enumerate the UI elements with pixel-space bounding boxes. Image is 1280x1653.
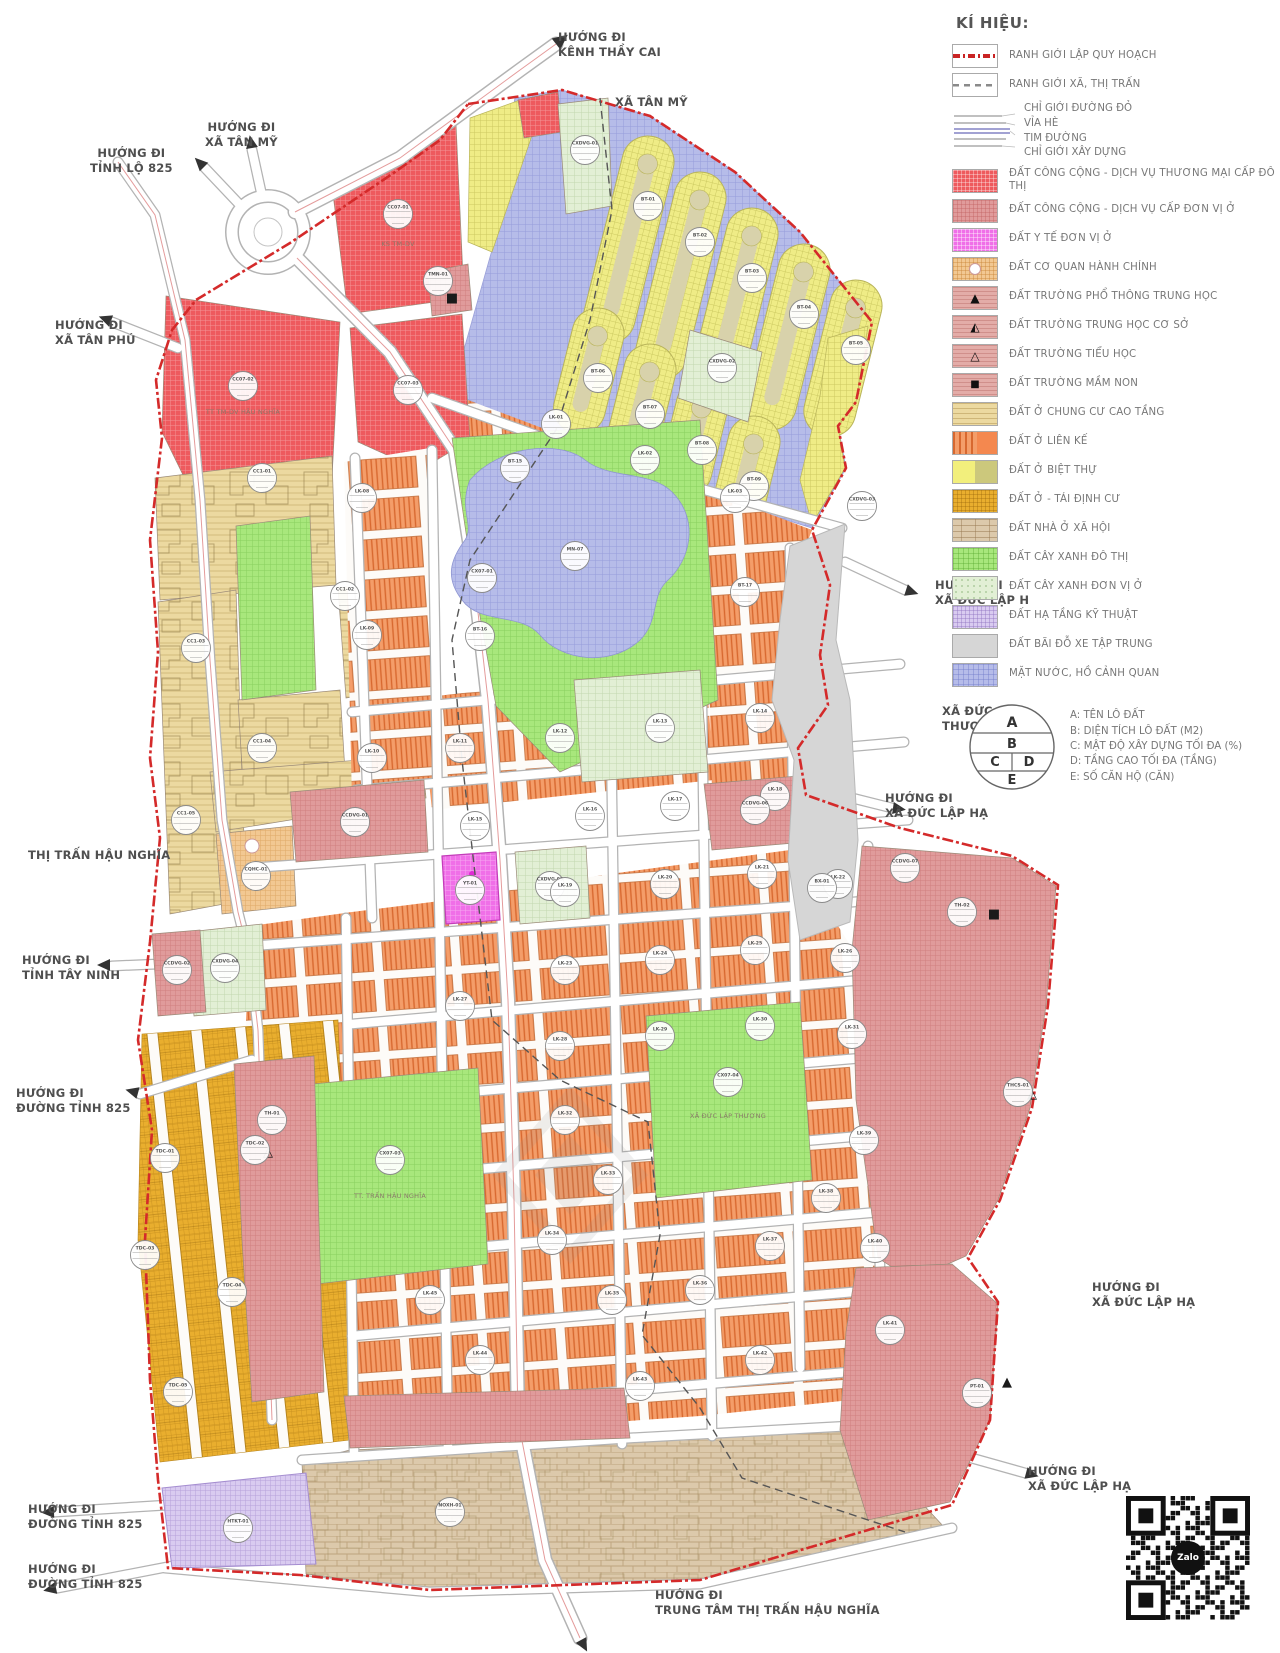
road-section-label: VỈA HÈ: [1024, 117, 1132, 132]
plot-marker: LK-37: [756, 1232, 785, 1261]
plot-marker: CXDVG-02: [708, 354, 737, 383]
label-kenh-thay-cai: HƯỚNG ĐI KÊNH THẦY CAI: [558, 30, 661, 60]
svg-text:LK-31: LK-31: [845, 1025, 859, 1031]
plot-marker: LK-25: [741, 936, 770, 965]
plot-marker: TH-01: [258, 1106, 287, 1135]
plot-marker: CC07-03: [394, 376, 423, 405]
plot-marker: CC1-03: [182, 634, 211, 663]
svg-text:NOXH-01: NOXH-01: [438, 1503, 461, 1509]
legend-item: ĐẤT CƠ QUAN HÀNH CHÍNH: [952, 257, 1278, 281]
plot-marker: CXDVG-01: [571, 136, 600, 165]
label-xa-tan-phu: HƯỚNG ĐI XÃ TÂN PHÚ: [55, 318, 136, 348]
plot-marker: MN-07: [561, 542, 590, 571]
svg-text:CC1-04: CC1-04: [253, 739, 271, 745]
plot-marker: BT-15: [501, 454, 530, 483]
svg-text:CC1-05: CC1-05: [177, 811, 195, 817]
label-di-xa-tan-my: HƯỚNG ĐI XÃ TÂN MỸ: [205, 120, 278, 150]
plot-marker: LK-43: [626, 1372, 655, 1401]
svg-text:TDC-01: TDC-01: [156, 1149, 175, 1155]
svg-text:CX07-04: CX07-04: [717, 1073, 739, 1079]
plot-marker: LK-11: [446, 734, 475, 763]
svg-text:CC07-03: CC07-03: [397, 381, 418, 387]
svg-text:LK-29: LK-29: [653, 1027, 667, 1033]
svg-text:LK-40: LK-40: [868, 1239, 882, 1245]
plot-marker: BT-02: [686, 228, 715, 257]
svg-text:LK-36: LK-36: [693, 1281, 707, 1287]
plot-marker: LK-10: [358, 744, 387, 773]
plot-marker: LK-26: [831, 944, 860, 973]
plot-marker: TDC-05: [164, 1378, 193, 1407]
plot-marker: CC1-05: [172, 806, 201, 835]
svg-text:CXDVG-03: CXDVG-03: [849, 497, 875, 503]
plot-marker: LK-32: [551, 1106, 580, 1135]
zalo-qr-code: Zalo: [1126, 1496, 1250, 1620]
svg-text:CCDVG-02: CCDVG-02: [164, 961, 190, 967]
plot-marker: LK-33: [594, 1166, 623, 1195]
swatch-biet-thu: [952, 460, 998, 484]
legend-item: ĐẤT CÂY XANH ĐÔ THỊ: [952, 547, 1278, 571]
svg-text:BT-17: BT-17: [738, 583, 752, 589]
svg-text:LK-26: LK-26: [838, 949, 852, 955]
label-xa-tan-my: XÃ TÂN MỸ: [615, 95, 688, 110]
school-glyph: ■: [988, 907, 1000, 922]
svg-text:TH-02: TH-02: [954, 903, 969, 909]
svg-text:CX07-03: CX07-03: [379, 1151, 401, 1157]
legend-item: ĐẤT Y TẾ ĐƠN VỊ Ở: [952, 228, 1278, 252]
plot-marker: LK-21: [748, 860, 777, 889]
swatch-chung-cu: [952, 402, 998, 426]
plot-marker: LK-44: [466, 1346, 495, 1375]
plot-marker: LK-40: [861, 1234, 890, 1263]
svg-text:LK-37: LK-37: [763, 1237, 777, 1243]
plot-marker: BX-01: [808, 874, 837, 903]
svg-text:LK-19: LK-19: [558, 883, 572, 889]
svg-text:D: D: [1024, 755, 1035, 770]
svg-text:LK-24: LK-24: [653, 951, 667, 957]
svg-text:B: B: [1007, 737, 1017, 752]
plot-marker: LK-01: [542, 410, 571, 439]
svg-text:LK-02: LK-02: [638, 451, 652, 457]
plot-marker: CX07-01: [468, 564, 497, 593]
plot-marker: BT-05: [842, 336, 871, 365]
svg-text:BT-05: BT-05: [849, 341, 863, 347]
plot-key-circle: A B C D E: [966, 701, 1058, 793]
legend-item: ĐẤT HẠ TẦNG KỸ THUẬT: [952, 605, 1278, 629]
swatch-tai-dinh-cu: [952, 489, 998, 513]
swatch-bai-do-xe: [952, 634, 998, 658]
sublabel-xa-duc-lap-thuong: XÃ ĐỨC LẬP THƯỢNG: [690, 1112, 766, 1120]
legend-item: ĐẤT Ở CHUNG CƯ CAO TẦNG: [952, 402, 1278, 426]
plot-marker: LK-28: [546, 1032, 575, 1061]
commune-boundary-swatch: [952, 73, 998, 97]
swatch-cay-xanh-don-vi-o: [952, 576, 998, 600]
label-xdlh-4: HƯỚNG ĐI XÃ ĐỨC LẬP HẠ: [1028, 1464, 1131, 1494]
plot-marker: LK-31: [838, 1020, 867, 1049]
plot-marker: BT-17: [731, 578, 760, 607]
svg-text:LK-32: LK-32: [558, 1111, 572, 1117]
plot-marker: CCDVG-01: [341, 808, 370, 837]
legend-item: ĐẤT TRƯỜNG TIỂU HỌC: [952, 344, 1278, 368]
legend-item: ĐẤT Ở - TÁI ĐỊNH CƯ: [952, 489, 1278, 513]
svg-text:TDC-05: TDC-05: [169, 1383, 188, 1389]
label-xdlh-3: HƯỚNG ĐI XÃ ĐỨC LẬP HẠ: [1092, 1280, 1195, 1310]
label-trung-tam: HƯỚNG ĐI TRUNG TÂM THỊ TRẤN HẬU NGHĨA: [655, 1588, 880, 1618]
legend-item: ĐẤT Ở BIỆT THỰ: [952, 460, 1278, 484]
svg-text:CXDVG-04: CXDVG-04: [212, 959, 238, 965]
svg-text:TDC-04: TDC-04: [223, 1283, 242, 1289]
label-tinh-tay-ninh: HƯỚNG ĐI TỈNH TÂY NINH: [22, 953, 120, 983]
plot-marker: LK-19: [551, 878, 580, 907]
plot-marker: LK-23: [551, 956, 580, 985]
svg-text:LK-25: LK-25: [748, 941, 762, 947]
legend-road-section: CHỈ GIỚI ĐƯỜNG ĐỎ VỈA HÈ TIM ĐƯỜNG CHỈ G…: [952, 102, 1278, 161]
svg-text:LK-13: LK-13: [653, 719, 667, 725]
svg-text:LK-23: LK-23: [558, 961, 572, 967]
svg-text:LK-45: LK-45: [423, 1291, 437, 1297]
swatch-truong-thcs: [952, 315, 998, 339]
legend-title: KÍ HIỆU:: [956, 14, 1278, 32]
swatch-lien-ke: [952, 431, 998, 455]
plot-marker: LK-20: [651, 870, 680, 899]
plot-marker: LK-30: [746, 1012, 775, 1041]
plot-marker: TDC-04: [218, 1278, 247, 1307]
svg-text:TDC-02: TDC-02: [246, 1141, 265, 1147]
plot-marker: TH-02: [948, 898, 977, 927]
legend: KÍ HIỆU: RANH GIỚI LẬP QUY HOẠCH RANH GI…: [952, 14, 1278, 793]
plot-marker: BT-04: [790, 300, 819, 329]
plot-marker: NOXH-01: [436, 1498, 465, 1527]
plot-marker: LK-03: [721, 484, 750, 513]
svg-text:BT-16: BT-16: [473, 627, 487, 633]
plot-marker: CX07-03: [376, 1146, 405, 1175]
swatch-y-te: [952, 228, 998, 252]
plot-marker: LK-36: [686, 1276, 715, 1305]
svg-text:LK-42: LK-42: [753, 1351, 767, 1357]
svg-text:LK-01: LK-01: [549, 415, 563, 421]
svg-text:CCDVG-07: CCDVG-07: [892, 859, 918, 865]
plot-marker: LK-27: [446, 992, 475, 1021]
svg-text:LK-15: LK-15: [468, 817, 482, 823]
svg-text:BX-01: BX-01: [815, 879, 830, 885]
svg-text:CCDVG-01: CCDVG-01: [342, 813, 368, 819]
legend-item: ĐẤT CÔNG CỘNG - DỊCH VỤ CẤP ĐƠN VỊ Ở: [952, 199, 1278, 223]
label-thi-tran-hau-nghia: THỊ TRẤN HẬU NGHĨA: [28, 848, 170, 863]
svg-text:LK-16: LK-16: [583, 807, 597, 813]
sublabel-ks-tmdv: KS TM-DV: [381, 240, 414, 248]
plot-marker: BT-06: [584, 364, 613, 393]
swatch-ha-tang: [952, 605, 998, 629]
plot-marker: CC1-02: [331, 582, 360, 611]
plot-marker: CC07-02: [229, 372, 258, 401]
svg-text:LK-08: LK-08: [355, 489, 369, 495]
plot-marker: BT-03: [738, 264, 767, 293]
svg-text:BT-01: BT-01: [641, 197, 655, 203]
legend-item: ĐẤT TRƯỜNG PHỔ THÔNG TRUNG HỌC: [952, 286, 1278, 310]
plot-marker: LK-38: [812, 1184, 841, 1213]
svg-text:BT-03: BT-03: [745, 269, 759, 275]
zalo-logo: Zalo: [1171, 1541, 1205, 1575]
svg-text:CQHC-01: CQHC-01: [245, 867, 268, 873]
plot-marker: TMN-01: [424, 267, 453, 296]
plot-marker: LK-35: [598, 1286, 627, 1315]
svg-text:TDC-03: TDC-03: [136, 1246, 155, 1252]
sublabel-tt-tmdv: TT TM-DV HẬU NGHĨA: [206, 408, 280, 416]
plot-marker: CC07-01: [384, 200, 413, 229]
plot-key: A B C D E A: TÊN LÔ ĐẤT B: DIỆN TÍCH LÔ …: [966, 701, 1278, 793]
legend-item-ranh-gioi-xa: RANH GIỚI XÃ, THỊ TRẤN: [952, 73, 1278, 97]
road-section-label: CHỈ GIỚI ĐƯỜNG ĐỎ: [1024, 102, 1132, 117]
planning-map-page: ▲■■◭△ CC07-01CC07-02CC07-03TMN-01CXDVG-0…: [0, 0, 1280, 1653]
plot-marker: LK-17: [661, 792, 690, 821]
road-section-diagram: [952, 110, 1016, 154]
svg-text:LK-20: LK-20: [658, 875, 672, 881]
svg-text:LK-21: LK-21: [755, 865, 769, 871]
swatch-truong-ptth: [952, 286, 998, 310]
plot-key-notes: A: TÊN LÔ ĐẤT B: DIỆN TÍCH LÔ ĐẤT (M2) C…: [1070, 708, 1242, 784]
svg-text:LK-03: LK-03: [728, 489, 742, 495]
plot-marker: CCDVG-07: [891, 854, 920, 883]
svg-text:LK-39: LK-39: [857, 1131, 871, 1137]
svg-text:CC1-02: CC1-02: [336, 587, 354, 593]
svg-text:BT-04: BT-04: [797, 305, 811, 311]
svg-text:BT-15: BT-15: [508, 459, 522, 465]
plot-marker: LK-39: [850, 1126, 879, 1155]
svg-text:LK-41: LK-41: [883, 1321, 897, 1327]
svg-text:CC07-02: CC07-02: [232, 377, 253, 383]
svg-text:CC1-01: CC1-01: [253, 469, 271, 475]
svg-text:YT-01: YT-01: [462, 881, 477, 887]
plot-marker: BT-08: [688, 436, 717, 465]
svg-text:A: A: [1007, 715, 1018, 731]
plot-marker: CC1-01: [248, 464, 277, 493]
sublabel-tt-hau-nghia: TT. TRẤN HẬU NGHĨA: [354, 1192, 426, 1200]
svg-text:LK-43: LK-43: [633, 1377, 647, 1383]
swatch-cong-cong-do-thi: [952, 169, 998, 193]
svg-text:CXDVG-01: CXDVG-01: [572, 141, 598, 147]
admin-circle-symbol: [245, 839, 259, 853]
plot-marker: LK-12: [546, 724, 575, 753]
legend-item: ĐẤT Ở LIÊN KẾ: [952, 431, 1278, 455]
plot-marker: LK-29: [646, 1022, 675, 1051]
legend-item: ĐẤT TRƯỜNG MẦM NON: [952, 373, 1278, 397]
plot-marker: CQHC-01: [242, 862, 271, 891]
svg-text:BT-08: BT-08: [695, 441, 709, 447]
swatch-mat-nuoc: [952, 663, 998, 687]
plot-marker: PT-01: [963, 1379, 992, 1408]
svg-text:C: C: [990, 755, 1000, 770]
school-glyph: ■: [446, 291, 458, 306]
legend-item: ĐẤT CÔNG CỘNG - DỊCH VỤ THƯƠNG MẠI CẤP Đ…: [952, 168, 1278, 194]
swatch-co-quan-hanh-chinh: [952, 257, 998, 281]
plot-marker: LK-15: [461, 812, 490, 841]
svg-text:BT-07: BT-07: [643, 405, 657, 411]
plot-marker: CC1-04: [248, 734, 277, 763]
plot-marker: LK-14: [746, 704, 775, 733]
plot-marker: LK-13: [646, 714, 675, 743]
plot-marker: LK-42: [746, 1346, 775, 1375]
swatch-nha-o-xa-hoi: [952, 518, 998, 542]
svg-text:CCDVG-06: CCDVG-06: [742, 801, 768, 807]
svg-text:CC1-03: CC1-03: [187, 639, 205, 645]
plot-marker: THCS-01: [1004, 1078, 1033, 1107]
svg-text:BT-02: BT-02: [693, 233, 707, 239]
svg-text:MN-07: MN-07: [567, 547, 584, 553]
plot-marker: BT-07: [636, 400, 665, 429]
svg-text:LK-12: LK-12: [553, 729, 567, 735]
svg-text:LK-09: LK-09: [360, 626, 374, 632]
svg-text:LK-34: LK-34: [545, 1231, 559, 1237]
svg-text:LK-38: LK-38: [819, 1189, 833, 1195]
svg-text:E: E: [1008, 773, 1017, 788]
plot-marker: HTKT-01: [224, 1514, 253, 1543]
svg-text:BT-09: BT-09: [747, 477, 761, 483]
plot-marker: BT-01: [634, 192, 663, 221]
plot-marker: LK-24: [646, 946, 675, 975]
legend-item: ĐẤT CÂY XANH ĐƠN VỊ Ở: [952, 576, 1278, 600]
label-duong-tinh-825-a: HƯỚNG ĐI ĐƯỜNG TỈNH 825: [16, 1086, 131, 1116]
svg-text:CX07-01: CX07-01: [471, 569, 493, 575]
svg-text:LK-11: LK-11: [453, 739, 467, 745]
svg-text:LK-14: LK-14: [753, 709, 767, 715]
svg-text:THCS-01: THCS-01: [1007, 1083, 1029, 1089]
plot-marker: LK-02: [631, 446, 660, 475]
svg-text:CXDVG-02: CXDVG-02: [709, 359, 735, 365]
legend-item: ĐẤT BÃI ĐỖ XE TẬP TRUNG: [952, 634, 1278, 658]
svg-text:HTKT-01: HTKT-01: [227, 1519, 248, 1525]
plot-marker: TDC-02: [241, 1136, 270, 1165]
svg-text:LK-27: LK-27: [453, 997, 467, 1003]
legend-item-ranh-gioi-quy-hoach: RANH GIỚI LẬP QUY HOẠCH: [952, 44, 1278, 68]
label-duong-tinh-825-b: HƯỚNG ĐI ĐƯỜNG TỈNH 825: [28, 1502, 143, 1532]
plot-marker: YT-01: [456, 876, 485, 905]
plot-marker: LK-41: [876, 1316, 905, 1345]
legend-item: ĐẤT NHÀ Ở XÃ HỘI: [952, 518, 1278, 542]
plot-marker: LK-08: [348, 484, 377, 513]
swatch-cay-xanh-do-thi: [952, 547, 998, 571]
label-xdlh-2: HƯỚNG ĐI XÃ ĐỨC LẬP HẠ: [885, 791, 988, 821]
school-glyph: ▲: [1002, 1375, 1012, 1390]
svg-text:LK-33: LK-33: [601, 1171, 615, 1177]
svg-text:LK-28: LK-28: [553, 1037, 567, 1043]
swatch-cong-cong-don-vi-o: [952, 199, 998, 223]
legend-item: MẶT NƯỚC, HỒ CẢNH QUAN: [952, 663, 1278, 687]
plot-marker: CCDVG-02: [163, 956, 192, 985]
swatch-truong-tieu-hoc: [952, 344, 998, 368]
planning-boundary-swatch: [952, 44, 998, 68]
svg-text:BT-06: BT-06: [591, 369, 605, 375]
svg-text:LK-30: LK-30: [753, 1017, 767, 1023]
road-section-label: CHỈ GIỚI XÂY DỰNG: [1024, 146, 1132, 161]
svg-text:PT-01: PT-01: [970, 1384, 984, 1390]
plot-marker: CX07-04: [714, 1068, 743, 1097]
road-section-label: TIM ĐƯỜNG: [1024, 132, 1132, 147]
svg-text:TH-01: TH-01: [264, 1111, 279, 1117]
label-tinh-lo-825: HƯỚNG ĐI TỈNH LỘ 825: [90, 146, 173, 176]
plot-marker: LK-34: [538, 1226, 567, 1255]
plot-marker: BT-16: [466, 622, 495, 651]
plot-marker: LK-45: [416, 1286, 445, 1315]
svg-text:LK-17: LK-17: [668, 797, 682, 803]
plot-marker: TDC-01: [151, 1144, 180, 1173]
svg-text:LK-35: LK-35: [605, 1291, 619, 1297]
svg-text:LK-44: LK-44: [473, 1351, 487, 1357]
svg-text:LK-18: LK-18: [768, 787, 782, 793]
svg-text:CC07-01: CC07-01: [387, 205, 408, 211]
plot-marker: TDC-03: [131, 1241, 160, 1270]
plot-marker: LK-16: [576, 802, 605, 831]
svg-text:TMN-01: TMN-01: [428, 272, 448, 278]
legend-item: ĐẤT TRƯỜNG TRUNG HỌC CƠ SỞ: [952, 315, 1278, 339]
plot-marker: CCDVG-06: [741, 796, 770, 825]
plot-marker: CXDVG-03: [848, 492, 877, 521]
plot-marker: CXDVG-04: [211, 954, 240, 983]
label-duong-tinh-825-c: HƯỚNG ĐI ĐƯỜNG TỈNH 825: [28, 1562, 143, 1592]
svg-text:LK-10: LK-10: [365, 749, 379, 755]
swatch-truong-mam-non: [952, 373, 998, 397]
plot-marker: LK-09: [353, 621, 382, 650]
